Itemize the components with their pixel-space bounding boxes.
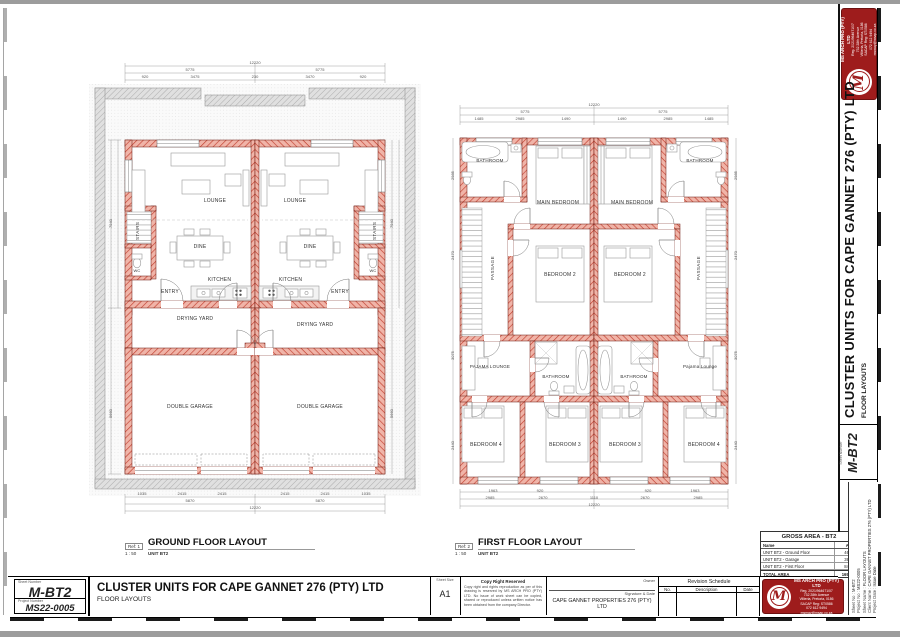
ref-badge: Ref: 1 (125, 543, 143, 550)
room-label-bedroom3: BEDROOM 3 (600, 442, 650, 448)
right-unit-mirror (594, 138, 728, 484)
room-label-main-bedroom: MAIN BEDROOM (535, 200, 581, 206)
dim-label: 5660 (108, 409, 113, 418)
dim-label: 2415 (310, 491, 340, 496)
room-label-passage: PASSAGE (696, 256, 701, 280)
sheet-size-cell: Sheet Size A1 (430, 577, 460, 616)
dim-label: 3470 (295, 74, 325, 79)
room-label-stairs: STAIRS (135, 222, 140, 240)
sheet-size-label: Sheet Size (430, 579, 460, 583)
room-label-double-garage: DOUBLE GARAGE (295, 404, 345, 410)
title-fields: Sheet No : M-BT2 Project No : MS22-0005 … (848, 482, 878, 615)
logo-text: MS ARCH PRO (PTY) LTD Reg. 2021/964671/0… (840, 13, 877, 66)
row-name: UNIT BT2 - Garage (761, 556, 835, 562)
dim-label: 1490 (607, 116, 637, 121)
dim-label: 3075 (450, 351, 455, 360)
room-label-bedroom4: BEDROOM 4 (678, 442, 730, 448)
dim-label: 5775 (648, 109, 678, 114)
stairs (462, 208, 482, 336)
sheet-number-box: Sheet Number M-BT2 Project Number MS22-0… (14, 579, 86, 614)
logo-monogram: M (772, 590, 786, 603)
dim-label: 5775 (175, 67, 205, 72)
dim-label: 1490 (551, 116, 581, 121)
dim-label: 1110 (579, 495, 609, 500)
room-label-bedroom2: BEDROOM 2 (535, 272, 585, 278)
row-name: UNIT BT2 - First Floor (761, 563, 835, 569)
ground-floor-svg (85, 58, 425, 532)
dim-label: 3075 (733, 351, 738, 360)
room-label-dine: DINE (180, 244, 220, 250)
dim-label: 920 (348, 74, 378, 79)
project-number: MS22-0005 (18, 604, 82, 614)
dim-label: 2985 (505, 116, 535, 121)
dim-label: 2985 (733, 171, 738, 180)
gross-area-header: Name Area (761, 542, 857, 549)
room-label-bedroom2: BEDROOM 2 (605, 272, 655, 278)
dim-label: 1035 (351, 491, 381, 496)
dim-label: 12220 (579, 502, 609, 507)
dim-label: 2670 (528, 495, 558, 500)
dim-label: 2985 (653, 116, 683, 121)
first-floor-svg (450, 100, 740, 540)
plan-scale: 1 : 50 (125, 551, 143, 556)
room-label-stairs: STAIRS (372, 222, 377, 240)
field-project-date: Project Date : Issue Date (872, 484, 877, 613)
sheet-ruler-bottom (10, 617, 876, 621)
field-project-no: Project No : MS22-0005 (856, 484, 861, 613)
dim-label: 2415 (207, 491, 237, 496)
room-label-entry: ENTRY (325, 289, 355, 295)
col-no: No. (659, 587, 677, 592)
room-label-lounge: LOUNGE (270, 198, 320, 204)
col-description: Description (677, 587, 737, 592)
drawing-sheet: LOUNGE LOUNGE DINE DINE KITCHEN KITCHEN … (0, 0, 900, 637)
vertical-sheet-name: FLOOR LAYOUTS (861, 148, 868, 418)
dim-label: 1485 (464, 116, 494, 121)
revision-title: Revision Schedule (659, 577, 759, 587)
company-email: msmay@msap.co.za (873, 13, 877, 66)
dim-label: 2470 (733, 251, 738, 260)
room-label-double-garage: DOUBLE GARAGE (165, 404, 215, 410)
plan-title: FIRST FLOOR LAYOUT (478, 537, 635, 550)
sheet-number: M-BT2 (18, 585, 82, 600)
project-title: CLUSTER UNITS FOR CAPE GANNET 276 (PTY) … (97, 582, 430, 595)
room-label-drying-yard: DRYING YARD (285, 322, 345, 328)
dim-label: 2670 (630, 495, 660, 500)
company-email: msmay@msap.co.za (794, 611, 839, 615)
room-label-lounge: LOUNGE (190, 198, 240, 204)
plan-title: GROUND FLOOR LAYOUT (148, 537, 315, 550)
dim-label: 1963 (680, 488, 710, 493)
sheet-ruler-left (3, 8, 7, 615)
dim-label: 2985 (683, 495, 713, 500)
room-label-bathroom: BATHROOM (672, 158, 728, 163)
dim-label: 2985 (475, 495, 505, 500)
table-row: UNIT BT2 - First Floor 84 m² (761, 563, 857, 570)
room-label-kitchen: KITCHEN (268, 277, 313, 283)
dim-label: 5870 (175, 498, 205, 503)
owner-cell: Owner Signature & Date CAPE GANNET PROPE… (546, 577, 658, 616)
dim-label: 5660 (389, 409, 394, 418)
copyright-cell: Copy Right Reserved Copy right and right… (460, 577, 546, 616)
plan-unit: UNIT BT2 (478, 551, 635, 556)
dim-label: 7940 (389, 219, 394, 228)
project-number-cell: Project Number MS22-0005 (15, 599, 85, 615)
row-name: UNIT BT2 - Ground Floor (761, 549, 835, 555)
room-label-entry: ENTRY (155, 289, 185, 295)
sheet-size: A1 (430, 589, 460, 599)
dim-label: 5775 (510, 109, 540, 114)
dim-label: 5870 (305, 498, 335, 503)
ground-floor-caption: Ref: 1 GROUND FLOOR LAYOUT 1 : 50 UNIT B… (125, 537, 315, 556)
col-date: Date (737, 587, 759, 592)
ground-floor-plan: LOUNGE LOUNGE DINE DINE KITCHEN KITCHEN … (85, 58, 425, 532)
room-label-pajama-lounge-right: Pajama Lounge (676, 364, 724, 369)
dim-label: 920 (130, 74, 160, 79)
owner-label: Owner (549, 578, 655, 583)
table-row: UNIT BT2 - Ground Floor 46 m² (761, 549, 857, 556)
sheet-name: FLOOR LAYOUTS (97, 596, 430, 603)
dim-label: 3475 (180, 74, 210, 79)
vertical-sheet-number-box: Sheet Number M-BT2 (840, 424, 878, 480)
room-label-dine: DINE (290, 244, 330, 250)
room-label-bathroom-mid: BATHROOM (612, 374, 656, 379)
plan-scale: 1 : 50 (455, 551, 473, 556)
sheet-number-cell: Sheet Number M-BT2 (15, 580, 85, 599)
field-client-name: Client Name : CAPE GANNET PROPERTIES 276… (867, 484, 872, 613)
vertical-project-title: CLUSTER UNITS FOR CAPE GANNET 276 (PTY) … (842, 148, 857, 418)
first-floor-plan: BATHROOM BATHROOM MAIN BEDROOM MAIN BEDR… (450, 100, 740, 540)
ref-badge: Ref: 2 (455, 543, 473, 550)
dim-label: 2440 (450, 441, 455, 450)
room-label-bedroom4: BEDROOM 4 (460, 442, 512, 448)
plan-unit: UNIT BT2 (148, 551, 315, 556)
room-label-kitchen: KITCHEN (197, 277, 242, 283)
dim-label: 920 (525, 488, 555, 493)
dim-label: 920 (633, 488, 663, 493)
dim-label: 5775 (305, 67, 335, 72)
room-label-pajama-lounge: PAJAMA LOUNGE (466, 364, 514, 369)
signature-label: Signature & Date (549, 590, 655, 596)
dim-label: 2470 (450, 251, 455, 260)
sheet-number: M-BT2 (845, 433, 860, 473)
room-label-wc: WC (365, 269, 381, 274)
company-logo: M MS ARCH PRO (PTY) LTD Reg. 2021/964671… (762, 579, 844, 614)
bottom-titleblock: Sheet Number M-BT2 Project Number MS22-0… (8, 576, 838, 615)
dim-label: 1963 (478, 488, 508, 493)
client-name: CAPE GANNET PROPERTIES 276 (PTY) LTD (549, 598, 655, 611)
copyright-text: Copy right and rights reproduction as pe… (464, 585, 542, 607)
dim-label: 230 (240, 74, 270, 79)
table-row: UNIT BT2 - Garage 39 m² (761, 556, 857, 563)
gross-area-title: GROSS AREA - BT2 (761, 532, 857, 542)
room-label-passage: PASSAGE (490, 256, 495, 280)
room-label-drying-yard: DRYING YARD (165, 316, 225, 322)
field-sheet-name: Sheet Name : FLOOR LAYOUTS (862, 484, 867, 613)
col-name: Name (761, 542, 835, 548)
dim-label: 12220 (240, 505, 270, 510)
dim-label: 1485 (694, 116, 724, 121)
room-label-bathroom: BATHROOM (462, 158, 518, 163)
revision-schedule: Revision Schedule No. Description Date (658, 577, 760, 616)
page-edge-bottom (0, 631, 900, 637)
dim-label: 7940 (108, 219, 113, 228)
revision-body (659, 593, 759, 616)
copyright-title: Copy Right Reserved (464, 579, 542, 584)
company-name: MS ARCH PRO (PTY) LTD (840, 13, 851, 66)
dim-label: 12220 (240, 60, 270, 65)
page-edge-top (0, 0, 900, 4)
room-label-bathroom-mid: BATHROOM (534, 374, 578, 379)
room-label-wc: WC (129, 269, 145, 274)
gross-area-table: GROSS AREA - BT2 Name Area UNIT BT2 - Gr… (760, 531, 858, 578)
dim-label: 2415 (270, 491, 300, 496)
room-label-bedroom3: BEDROOM 3 (540, 442, 590, 448)
dim-label: 2985 (450, 171, 455, 180)
dim-label: 2440 (733, 441, 738, 450)
company-name: MS ARCH PRO (PTY) LTD (794, 578, 839, 589)
first-floor-caption: Ref: 2 FIRST FLOOR LAYOUT 1 : 50 UNIT BT… (455, 537, 635, 556)
logo-monogram-icon: M (767, 585, 791, 609)
room-label-main-bedroom: MAIN BEDROOM (609, 200, 655, 206)
logo-text: MS ARCH PRO (PTY) LTD Reg. 2021/964671/0… (794, 578, 839, 615)
sheet-number-label: Sheet Number (840, 425, 844, 481)
dim-label: 12220 (579, 102, 609, 107)
dim-label: 1035 (127, 491, 157, 496)
dim-label: 2415 (167, 491, 197, 496)
title-cell: CLUSTER UNITS FOR CAPE GANNET 276 (PTY) … (88, 577, 430, 616)
